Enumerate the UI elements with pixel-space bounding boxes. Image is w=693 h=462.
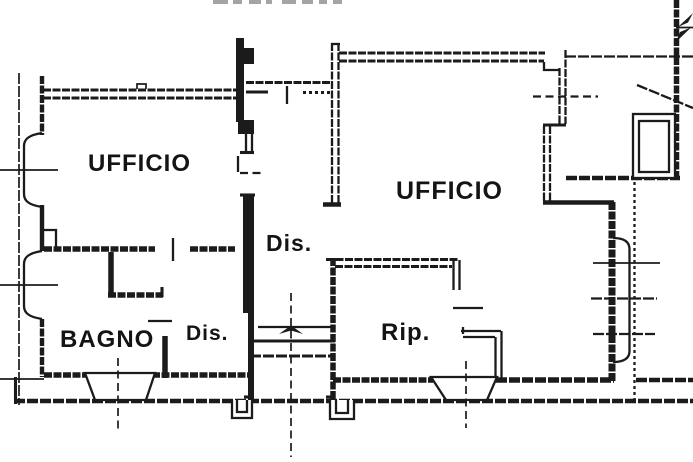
room-label-bagno: BAGNO — [60, 326, 154, 353]
windows-left — [24, 133, 42, 319]
exterior-walls — [14, 76, 693, 404]
trapezoid-window — [85, 373, 155, 400]
top-right-annotations — [633, 13, 693, 178]
room-label-ufficio-left: UFFICIO — [88, 150, 191, 177]
bagno-walls — [44, 238, 235, 378]
annotation-arrow — [678, 13, 693, 27]
diagonal-mark — [637, 85, 693, 108]
cropped-text-fragment — [213, 0, 342, 4]
wall-segment — [243, 194, 254, 313]
wall-pilaster — [236, 38, 244, 122]
pilaster-u — [232, 400, 252, 418]
wall-pilaster — [238, 120, 254, 134]
trapezoid-window — [431, 377, 497, 400]
entrance-vestibule — [244, 326, 335, 398]
corridor-walls — [236, 38, 341, 400]
pilaster-u — [330, 400, 354, 419]
wall-step — [544, 62, 559, 70]
room-label-dis-lobby: Dis. — [186, 322, 229, 345]
room-label-rip: Rip. — [381, 319, 430, 346]
room-label-ufficio-right: UFFICIO — [396, 177, 503, 205]
wall-pilaster — [244, 48, 254, 64]
floor-plan-canvas: UFFICIO UFFICIO Dis. BAGNO Dis. Rip. — [0, 0, 693, 462]
floor-plan-scan: UFFICIO UFFICIO Dis. BAGNO Dis. Rip. — [0, 0, 693, 462]
room-label-dis-central: Dis. — [266, 230, 312, 256]
wall-notch — [137, 84, 146, 89]
